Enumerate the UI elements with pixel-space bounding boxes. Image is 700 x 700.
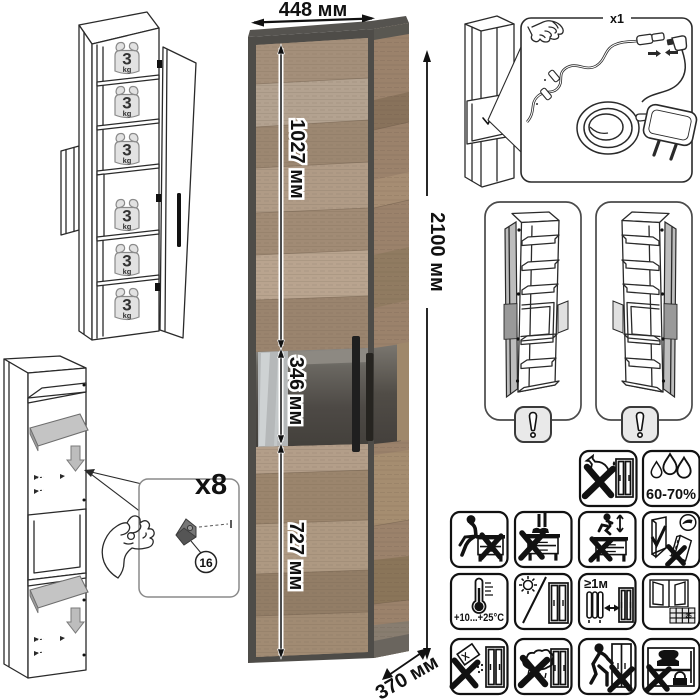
svg-text:448 мм: 448 мм [279, 0, 348, 21]
svg-text:25: 25 [686, 614, 692, 620]
svg-text:727 мм: 727 мм [285, 522, 307, 591]
svg-text:x1: x1 [610, 12, 624, 26]
svg-text:kg: kg [123, 156, 132, 165]
svg-text:2100 мм: 2100 мм [426, 212, 448, 292]
svg-text:16: 16 [199, 556, 213, 570]
svg-text:kg: kg [123, 109, 132, 118]
svg-text:kg: kg [123, 267, 132, 276]
svg-text:kg: kg [123, 222, 132, 231]
svg-text:346 мм: 346 мм [285, 357, 307, 426]
svg-text:x8: x8 [195, 469, 227, 501]
svg-text:kg: kg [123, 311, 132, 320]
svg-text:kg: kg [123, 65, 132, 74]
svg-text:60-70%: 60-70% [646, 487, 696, 503]
svg-text:1027 мм: 1027 мм [286, 119, 308, 199]
svg-text:+10...+25°C: +10...+25°C [454, 612, 504, 624]
svg-text:≥1м: ≥1м [584, 576, 608, 591]
